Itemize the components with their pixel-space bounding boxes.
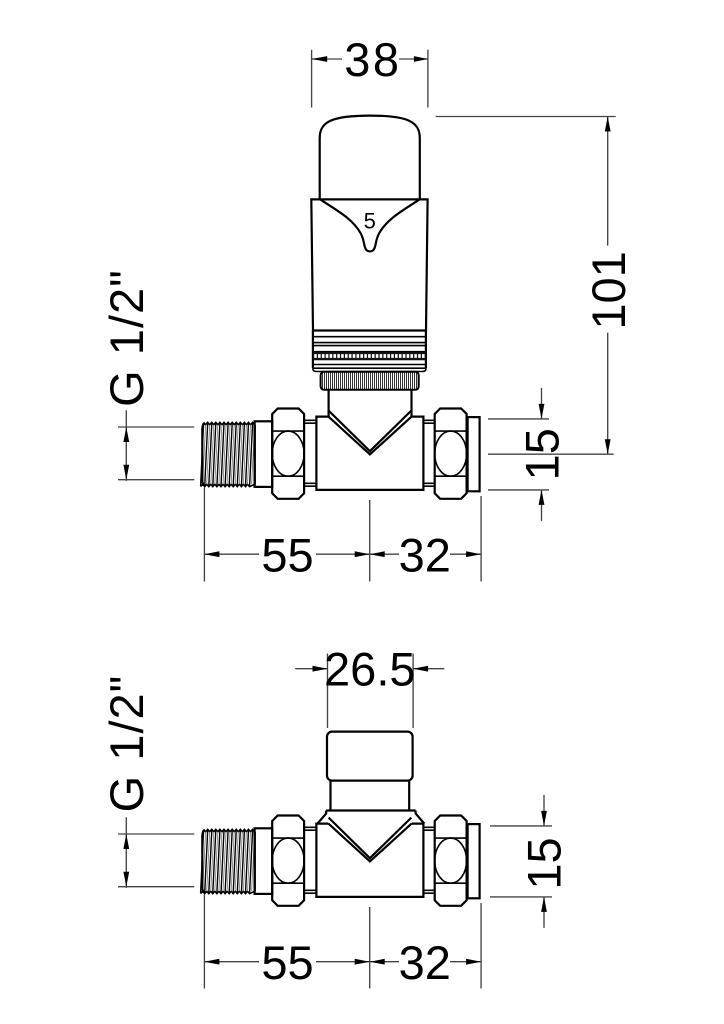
svg-text:55: 55: [261, 936, 313, 989]
svg-text:55: 55: [261, 529, 313, 582]
svg-text:26.5: 26.5: [324, 642, 415, 695]
svg-text:G 1/2": G 1/2": [100, 675, 153, 813]
svg-text:101: 101: [582, 251, 635, 329]
svg-text:38: 38: [344, 33, 401, 86]
svg-text:15: 15: [518, 837, 571, 889]
svg-text:G 1/2": G 1/2": [100, 269, 153, 407]
svg-text:32: 32: [399, 936, 451, 989]
svg-text:32: 32: [399, 529, 451, 582]
svg-text:5: 5: [364, 209, 376, 234]
svg-text:15: 15: [516, 428, 569, 480]
